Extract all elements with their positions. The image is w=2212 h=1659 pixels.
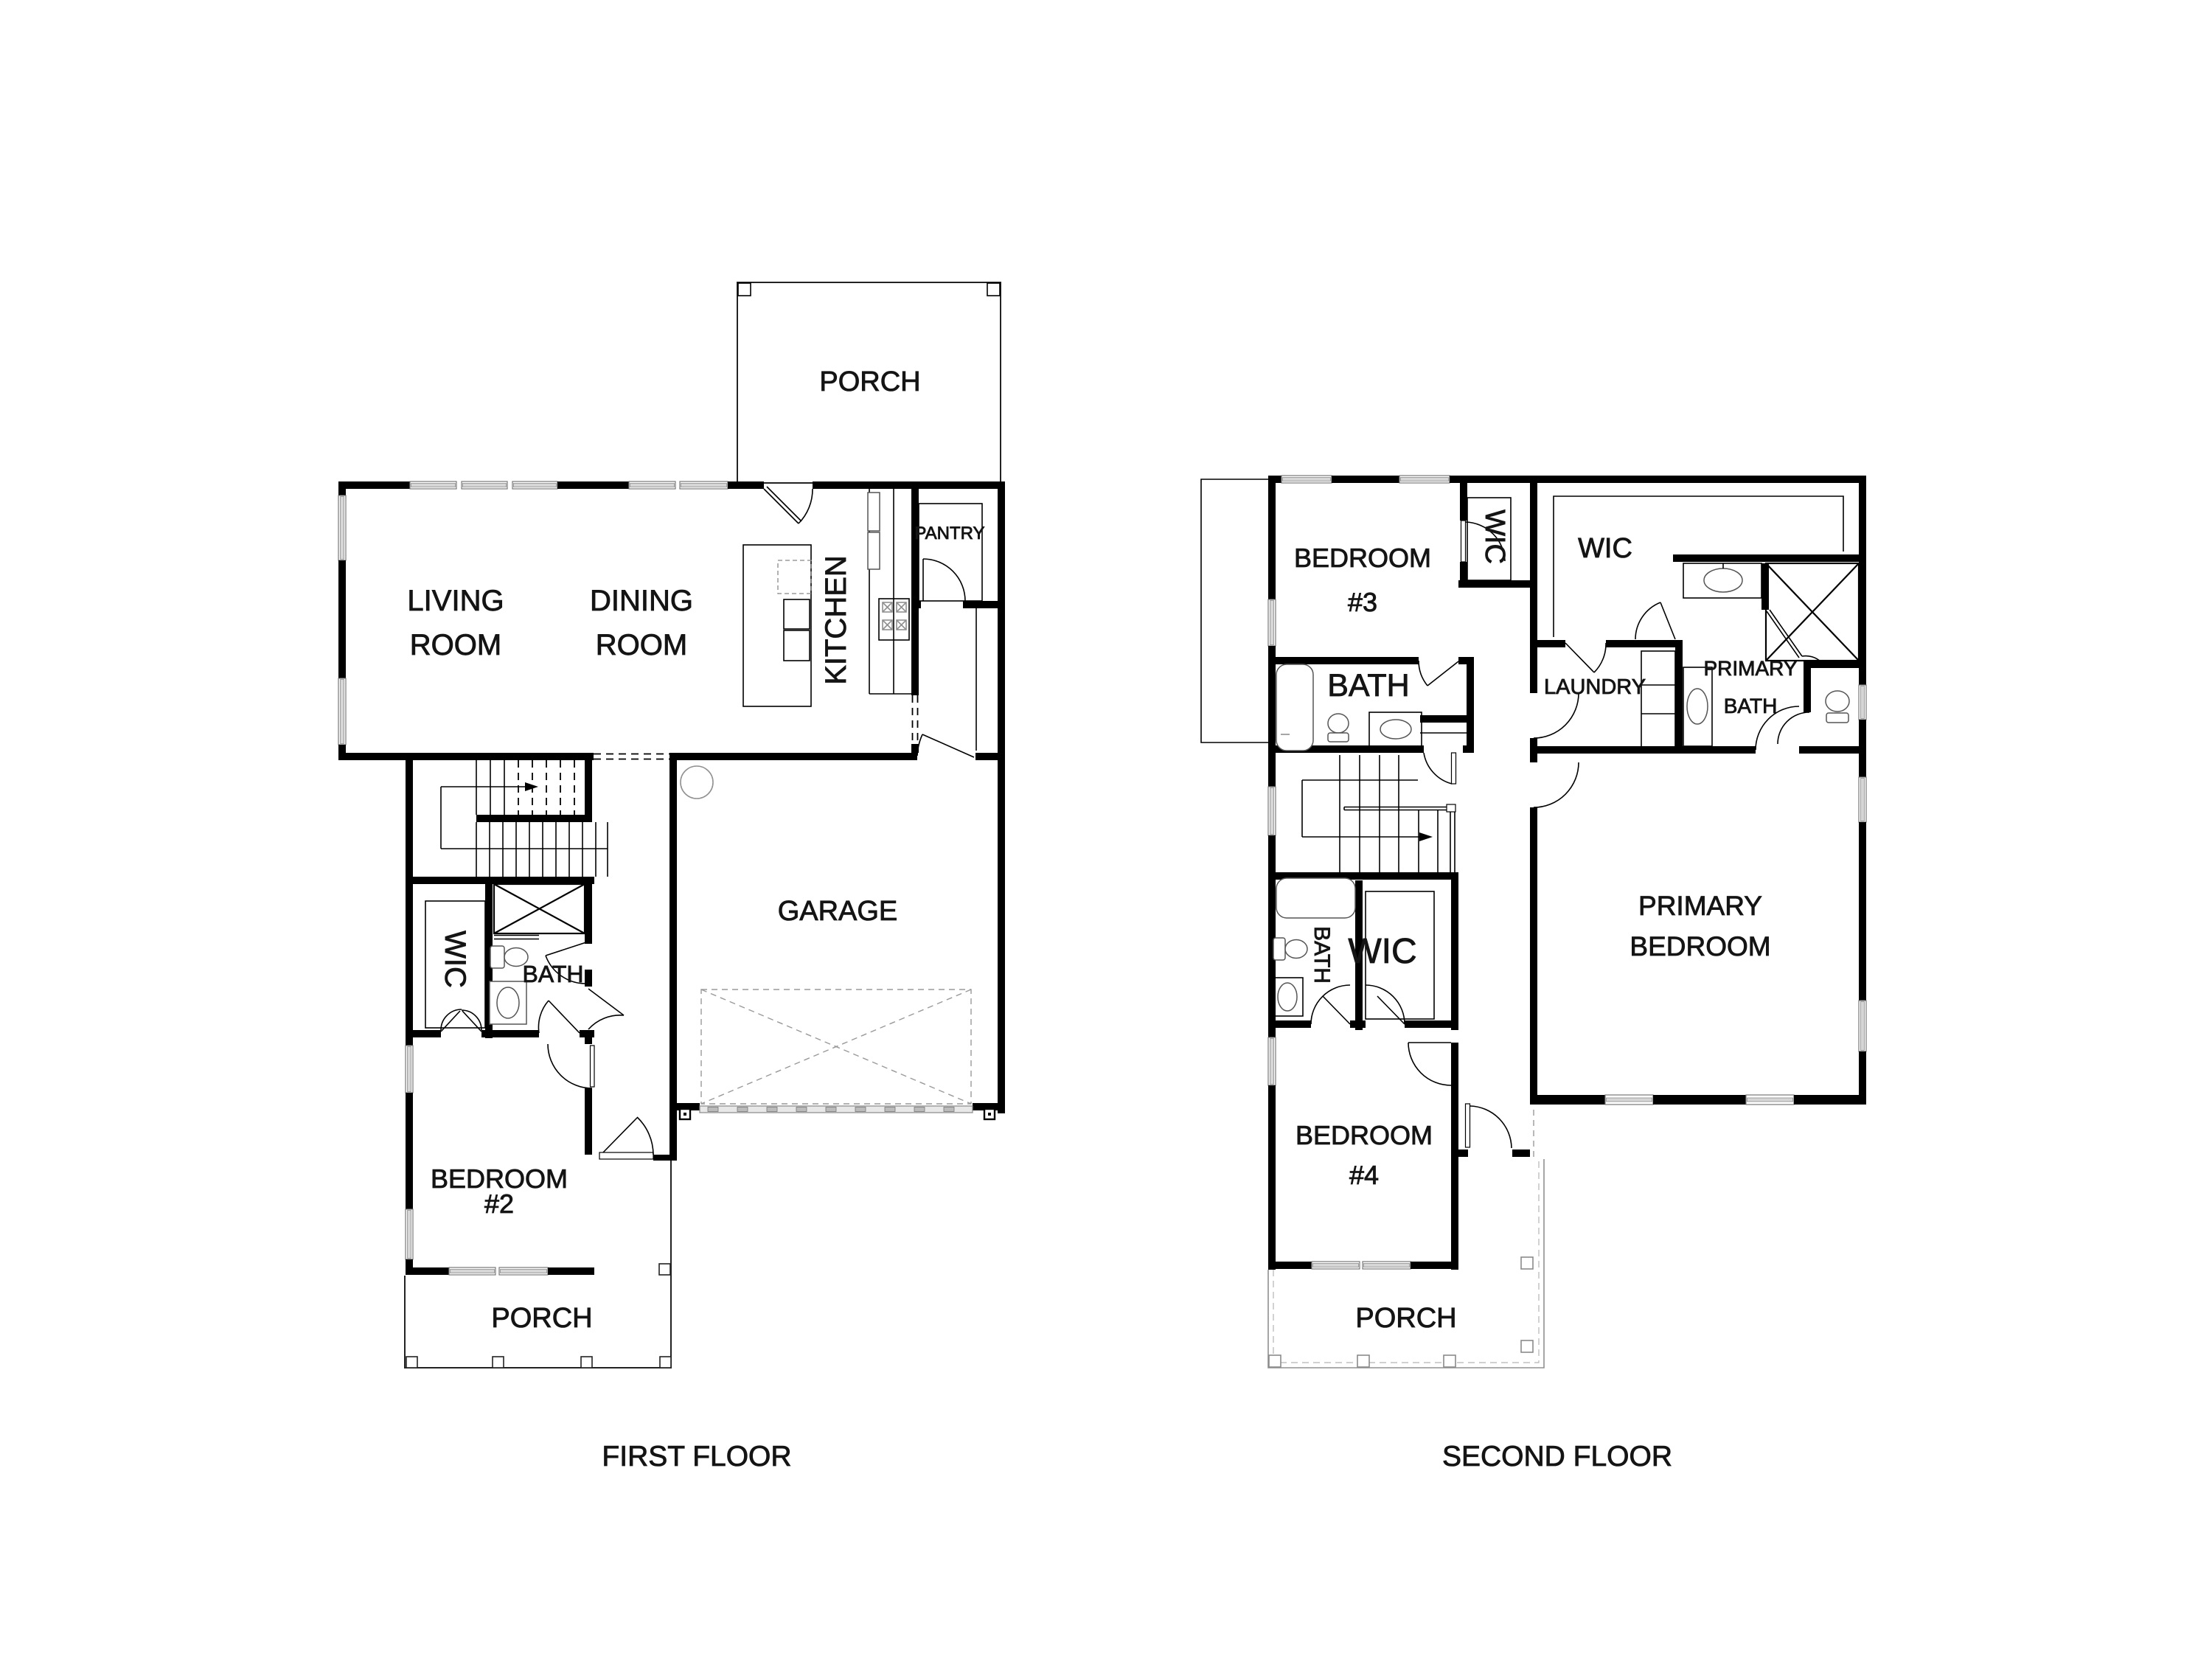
svg-text:BATH: BATH — [1724, 695, 1778, 717]
svg-text:ROOM: ROOM — [410, 629, 501, 661]
svg-text:#4: #4 — [1349, 1160, 1379, 1190]
svg-text:GARAGE: GARAGE — [778, 896, 898, 927]
svg-text:ROOM: ROOM — [596, 629, 687, 661]
svg-text:#2: #2 — [484, 1189, 514, 1219]
svg-text:WIC: WIC — [1578, 533, 1632, 564]
svg-text:DINING: DINING — [590, 585, 693, 617]
svg-text:BATH: BATH — [1327, 668, 1410, 703]
svg-text:BEDROOM: BEDROOM — [1630, 931, 1770, 961]
svg-text:WIC: WIC — [1479, 509, 1510, 564]
svg-text:SECOND FLOOR: SECOND FLOOR — [1442, 1441, 1672, 1472]
svg-text:BEDROOM: BEDROOM — [1295, 1120, 1433, 1150]
svg-text:PANTRY: PANTRY — [914, 524, 984, 543]
svg-text:PORCH: PORCH — [1355, 1303, 1456, 1334]
svg-text:WIC: WIC — [1348, 932, 1416, 971]
svg-text:PORCH: PORCH — [491, 1303, 592, 1334]
svg-text:BEDROOM: BEDROOM — [1294, 543, 1431, 573]
svg-text:LIVING: LIVING — [407, 585, 504, 617]
svg-text:PORCH: PORCH — [819, 366, 920, 397]
svg-text:PRIMARY: PRIMARY — [1703, 657, 1797, 680]
svg-text:BATH: BATH — [523, 961, 584, 987]
svg-text:PRIMARY: PRIMARY — [1638, 891, 1762, 921]
svg-text:#3: #3 — [1348, 587, 1377, 617]
svg-text:FIRST FLOOR: FIRST FLOOR — [602, 1441, 791, 1472]
svg-text:LAUNDRY: LAUNDRY — [1544, 675, 1646, 699]
svg-text:BATH: BATH — [1310, 926, 1334, 984]
svg-text:WIC: WIC — [439, 931, 471, 988]
svg-text:KITCHEN: KITCHEN — [820, 555, 852, 685]
